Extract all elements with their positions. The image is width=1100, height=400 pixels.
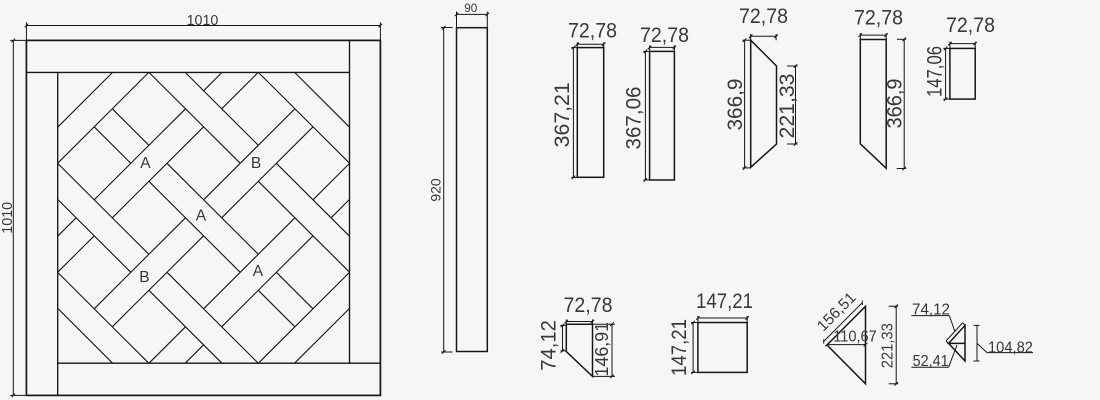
svg-text:366,9: 366,9 bbox=[884, 79, 907, 129]
svg-text:72,78: 72,78 bbox=[854, 7, 903, 30]
svg-text:147,06: 147,06 bbox=[923, 46, 946, 97]
svg-text:1010: 1010 bbox=[0, 202, 16, 234]
svg-text:1010: 1010 bbox=[187, 13, 219, 29]
svg-text:221,33: 221,33 bbox=[879, 323, 896, 368]
svg-text:146,91: 146,91 bbox=[591, 322, 612, 377]
svg-text:147,21: 147,21 bbox=[696, 290, 753, 313]
svg-text:367,06: 367,06 bbox=[622, 87, 645, 150]
svg-text:104,82: 104,82 bbox=[988, 339, 1033, 356]
svg-text:B: B bbox=[251, 155, 261, 172]
svg-text:A: A bbox=[196, 208, 207, 225]
svg-text:221,33: 221,33 bbox=[776, 74, 799, 139]
svg-text:90: 90 bbox=[464, 1, 477, 15]
svg-text:72,78: 72,78 bbox=[568, 20, 617, 43]
svg-text:367,21: 367,21 bbox=[551, 82, 574, 147]
svg-text:B: B bbox=[139, 269, 149, 286]
svg-text:72,78: 72,78 bbox=[739, 5, 788, 28]
svg-text:72,78: 72,78 bbox=[946, 14, 995, 37]
svg-text:A: A bbox=[253, 263, 264, 280]
svg-text:920: 920 bbox=[428, 178, 444, 202]
svg-text:72,78: 72,78 bbox=[640, 24, 689, 47]
svg-text:366,9: 366,9 bbox=[724, 79, 747, 131]
svg-text:74,12: 74,12 bbox=[538, 320, 561, 371]
svg-text:110,67: 110,67 bbox=[833, 328, 877, 345]
svg-text:147,21: 147,21 bbox=[668, 319, 691, 376]
svg-text:A: A bbox=[140, 155, 151, 172]
svg-text:72,78: 72,78 bbox=[564, 294, 613, 317]
